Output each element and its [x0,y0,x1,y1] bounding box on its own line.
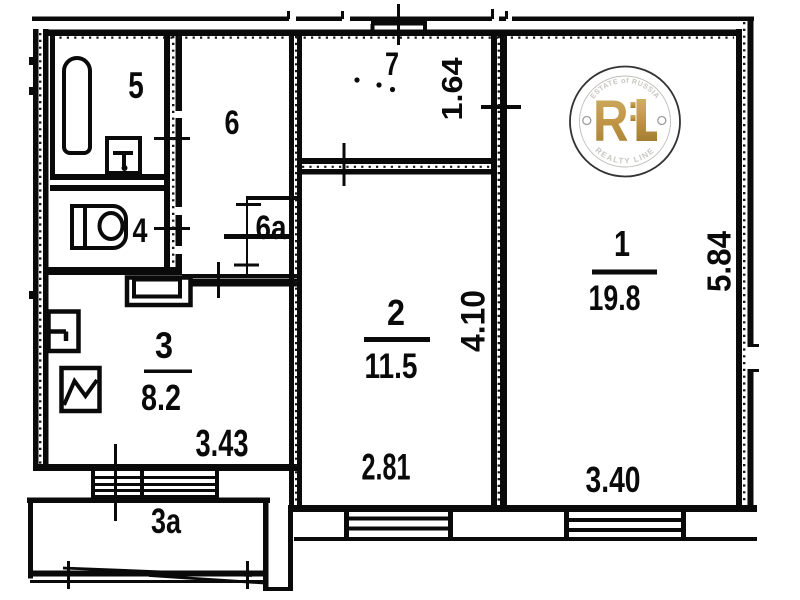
svg-text:3a: 3a [151,502,181,541]
svg-text:11.5: 11.5 [365,347,418,386]
svg-text:4.10: 4.10 [455,290,493,352]
svg-text:3.40: 3.40 [586,459,641,500]
svg-text:2: 2 [387,292,405,333]
svg-text:8.2: 8.2 [141,377,181,418]
svg-text:R: R [593,89,629,154]
svg-text:5.84: 5.84 [701,230,738,292]
svg-text:6a: 6a [256,209,288,247]
svg-text:3.43: 3.43 [196,423,249,465]
svg-text:1.64: 1.64 [437,58,469,121]
svg-text:3: 3 [155,325,173,366]
svg-text:1: 1 [614,223,630,264]
svg-text:4: 4 [133,212,148,250]
svg-text:6: 6 [225,104,240,142]
svg-text:19.8: 19.8 [589,279,641,318]
svg-text:5: 5 [128,65,144,106]
svg-text:2.81: 2.81 [362,447,411,488]
svg-text:7: 7 [385,46,399,82]
